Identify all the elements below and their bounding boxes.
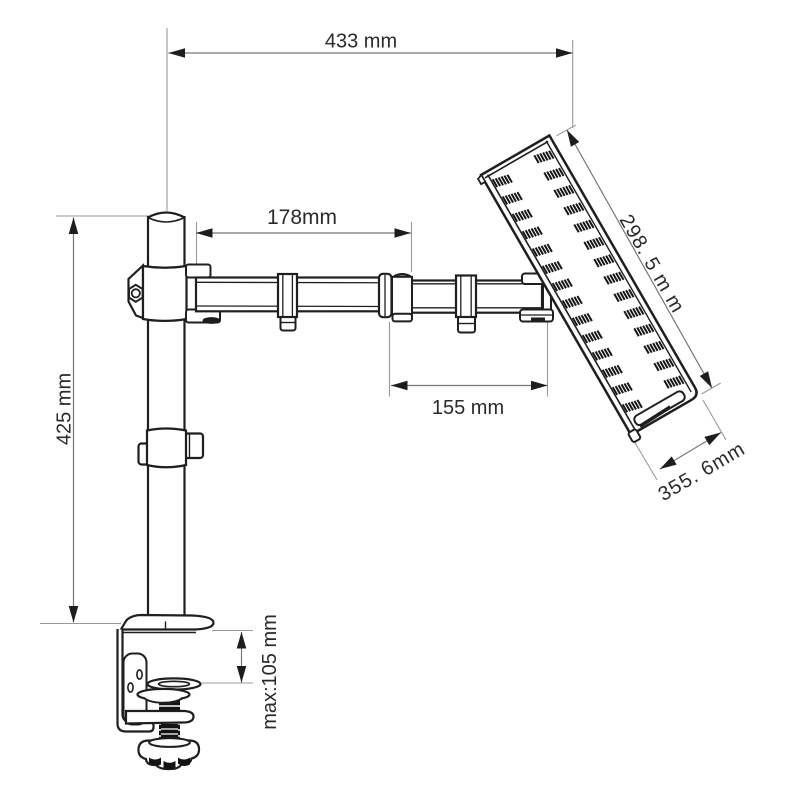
svg-text:178mm: 178mm: [267, 206, 337, 229]
svg-text:425 mm: 425 mm: [54, 373, 76, 445]
svg-text:155 mm: 155 mm: [432, 397, 504, 419]
svg-text:max:105 mm: max:105 mm: [259, 614, 281, 730]
svg-text:433 mm: 433 mm: [325, 31, 397, 53]
